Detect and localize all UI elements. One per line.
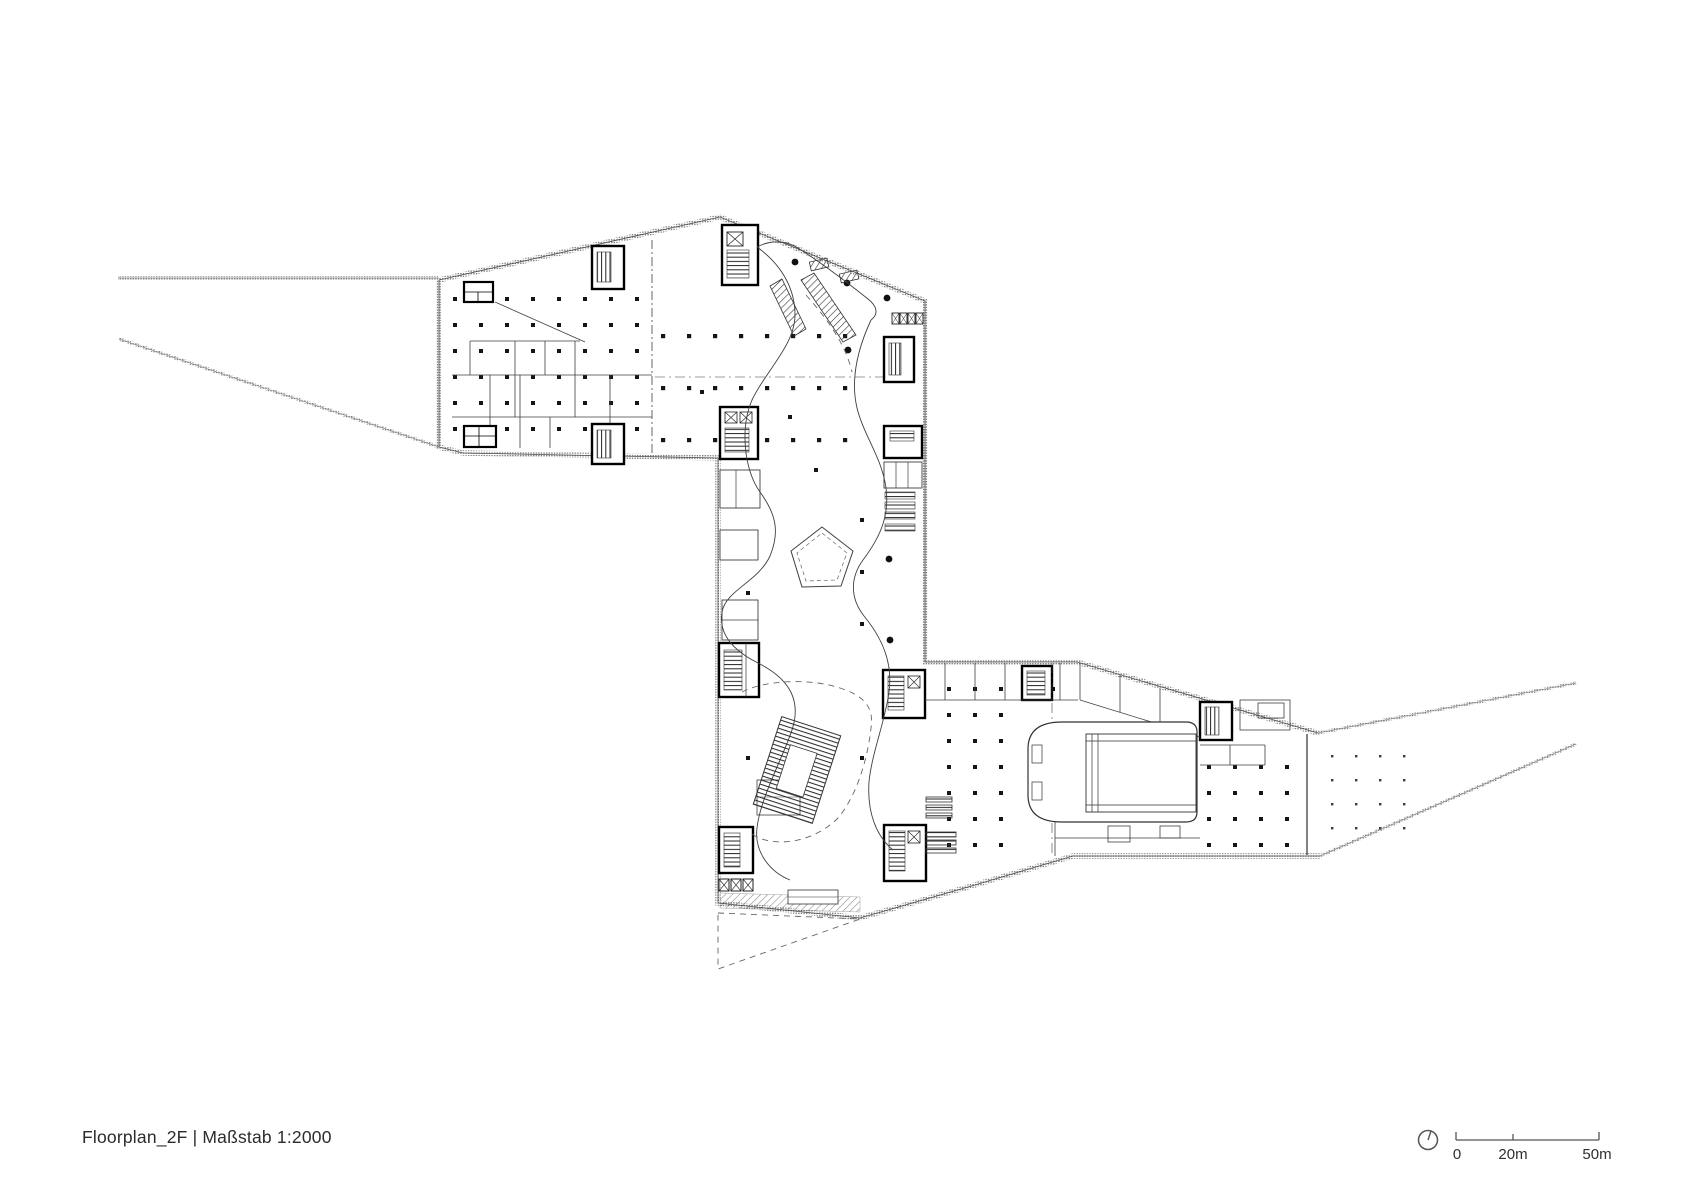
drawing-title: Floorplan_2F | Maßstab 1:2000 bbox=[82, 1127, 332, 1148]
grand-staircase bbox=[753, 717, 840, 824]
scalebar-label-20m: 20m bbox=[1498, 1146, 1527, 1163]
floorplan-drawing bbox=[0, 0, 1697, 1200]
entry-ramp bbox=[720, 890, 860, 912]
scalebar-label-0: 0 bbox=[1453, 1146, 1461, 1163]
scalebar-label-50m: 50m bbox=[1582, 1146, 1611, 1163]
north-orientation-icon bbox=[1419, 1131, 1438, 1150]
auditorium bbox=[1028, 722, 1197, 822]
pentagon-void bbox=[791, 527, 853, 587]
drawing-sheet: Floorplan_2F | Maßstab 1:2000 0 20m 50m bbox=[0, 0, 1697, 1200]
column-grid bbox=[452, 259, 1417, 853]
